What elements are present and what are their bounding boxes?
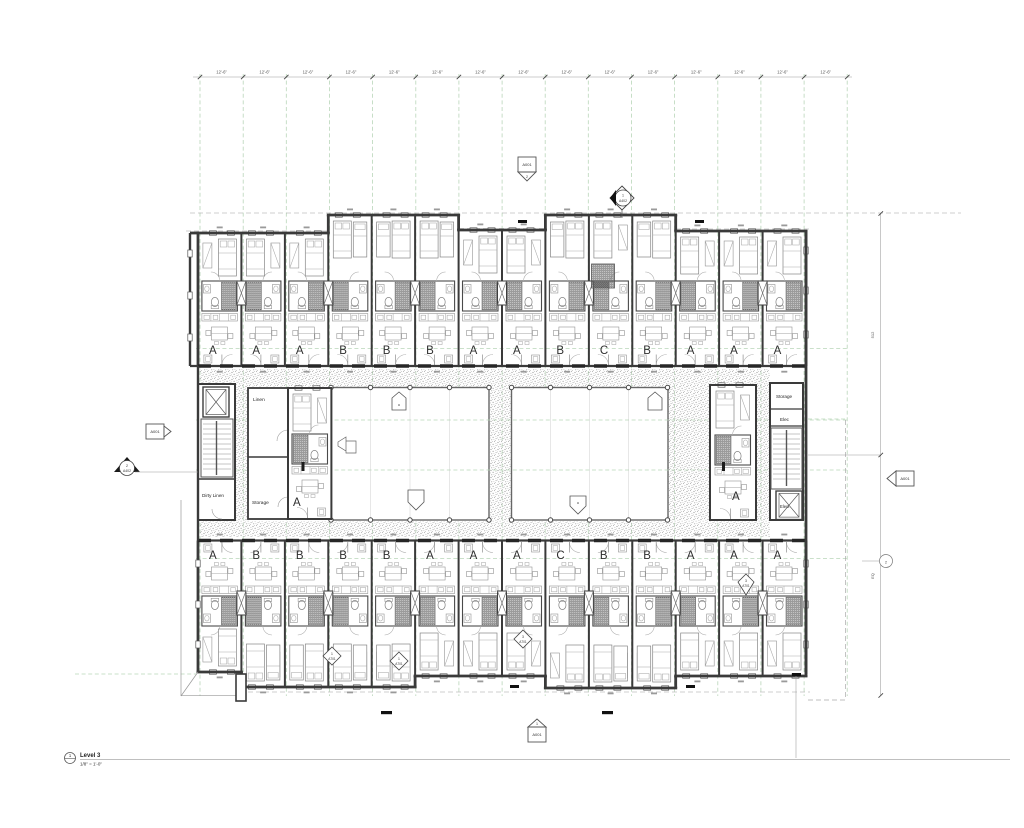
svg-text:Level 3: Level 3: [80, 753, 101, 759]
svg-text:1: 1: [536, 722, 538, 726]
svg-text:A: A: [513, 345, 521, 357]
svg-text:12'-6": 12'-6": [216, 70, 227, 75]
svg-text:12'-6": 12'-6": [561, 70, 572, 75]
svg-text:12'-6": 12'-6": [518, 70, 529, 75]
svg-text:B: B: [600, 550, 608, 562]
svg-text:Linen: Linen: [253, 397, 265, 403]
svg-text:12'-6": 12'-6": [346, 70, 357, 75]
svg-text:B: B: [296, 550, 304, 562]
svg-text:Storage: Storage: [252, 500, 269, 506]
svg-text:A: A: [513, 550, 521, 562]
svg-text:12'-6": 12'-6": [475, 70, 486, 75]
svg-text:A: A: [296, 345, 304, 357]
svg-text:12'-6": 12'-6": [432, 70, 443, 75]
svg-text:A: A: [774, 345, 782, 357]
svg-text:12'-6": 12'-6": [734, 70, 745, 75]
svg-text:A701: A701: [519, 640, 527, 644]
svg-text:512: 512: [870, 331, 875, 338]
svg-text:A402: A402: [123, 469, 131, 473]
svg-text:A: A: [209, 345, 217, 357]
svg-text:C: C: [556, 550, 564, 562]
svg-text:A: A: [732, 491, 740, 503]
svg-text:A: A: [293, 497, 301, 509]
svg-text:A: A: [470, 550, 478, 562]
svg-text:A701: A701: [742, 584, 750, 588]
svg-text:12'-6": 12'-6": [648, 70, 659, 75]
svg-text:A: A: [687, 550, 695, 562]
svg-text:12'-6": 12'-6": [303, 70, 314, 75]
svg-text:A701: A701: [395, 662, 403, 666]
svg-text:3: 3: [522, 635, 524, 639]
svg-text:A: A: [470, 345, 478, 357]
svg-text:B: B: [643, 550, 651, 562]
svg-text:A: A: [730, 550, 738, 562]
svg-text:A: A: [252, 345, 260, 357]
svg-text:Storage: Storage: [776, 394, 793, 399]
svg-text:12'-6": 12'-6": [259, 70, 270, 75]
svg-text:A001: A001: [150, 429, 160, 434]
svg-text:A001: A001: [900, 476, 910, 481]
svg-text:B: B: [383, 345, 391, 357]
svg-text:B: B: [252, 550, 260, 562]
svg-text:A701: A701: [328, 657, 336, 661]
svg-text:Dirty Linen: Dirty Linen: [202, 493, 224, 498]
svg-text:1: 1: [331, 652, 333, 656]
svg-text:A: A: [774, 550, 782, 562]
svg-text:12'-6": 12'-6": [691, 70, 702, 75]
svg-text:Elect: Elect: [780, 504, 790, 509]
svg-text:B: B: [383, 550, 391, 562]
svg-text:A: A: [730, 345, 738, 357]
svg-text:A: A: [209, 550, 217, 562]
svg-text:A: A: [687, 345, 695, 357]
svg-text:A: A: [426, 550, 434, 562]
svg-text:1/8" = 1'-0": 1/8" = 1'-0": [80, 762, 102, 767]
svg-text:2: 2: [526, 175, 528, 179]
svg-text:12'-6": 12'-6": [389, 70, 400, 75]
svg-text:2: 2: [126, 464, 128, 468]
svg-text:A001: A001: [532, 732, 542, 737]
svg-text:Elec: Elec: [780, 417, 790, 422]
svg-text:12'-6": 12'-6": [820, 70, 831, 75]
svg-text:12'-6": 12'-6": [777, 70, 788, 75]
svg-text:B: B: [426, 345, 434, 357]
svg-text:1: 1: [398, 657, 400, 661]
svg-text:12'-6": 12'-6": [605, 70, 616, 75]
svg-text:B: B: [339, 345, 347, 357]
svg-text:B: B: [643, 345, 651, 357]
svg-text:EQ: EQ: [870, 573, 875, 579]
svg-text:A402: A402: [619, 199, 627, 203]
svg-text:A001: A001: [522, 162, 532, 167]
svg-text:B: B: [339, 550, 347, 562]
svg-text:3: 3: [745, 579, 747, 583]
svg-text:B: B: [556, 345, 564, 357]
svg-text:1: 1: [622, 194, 624, 198]
svg-text:C: C: [600, 345, 608, 357]
